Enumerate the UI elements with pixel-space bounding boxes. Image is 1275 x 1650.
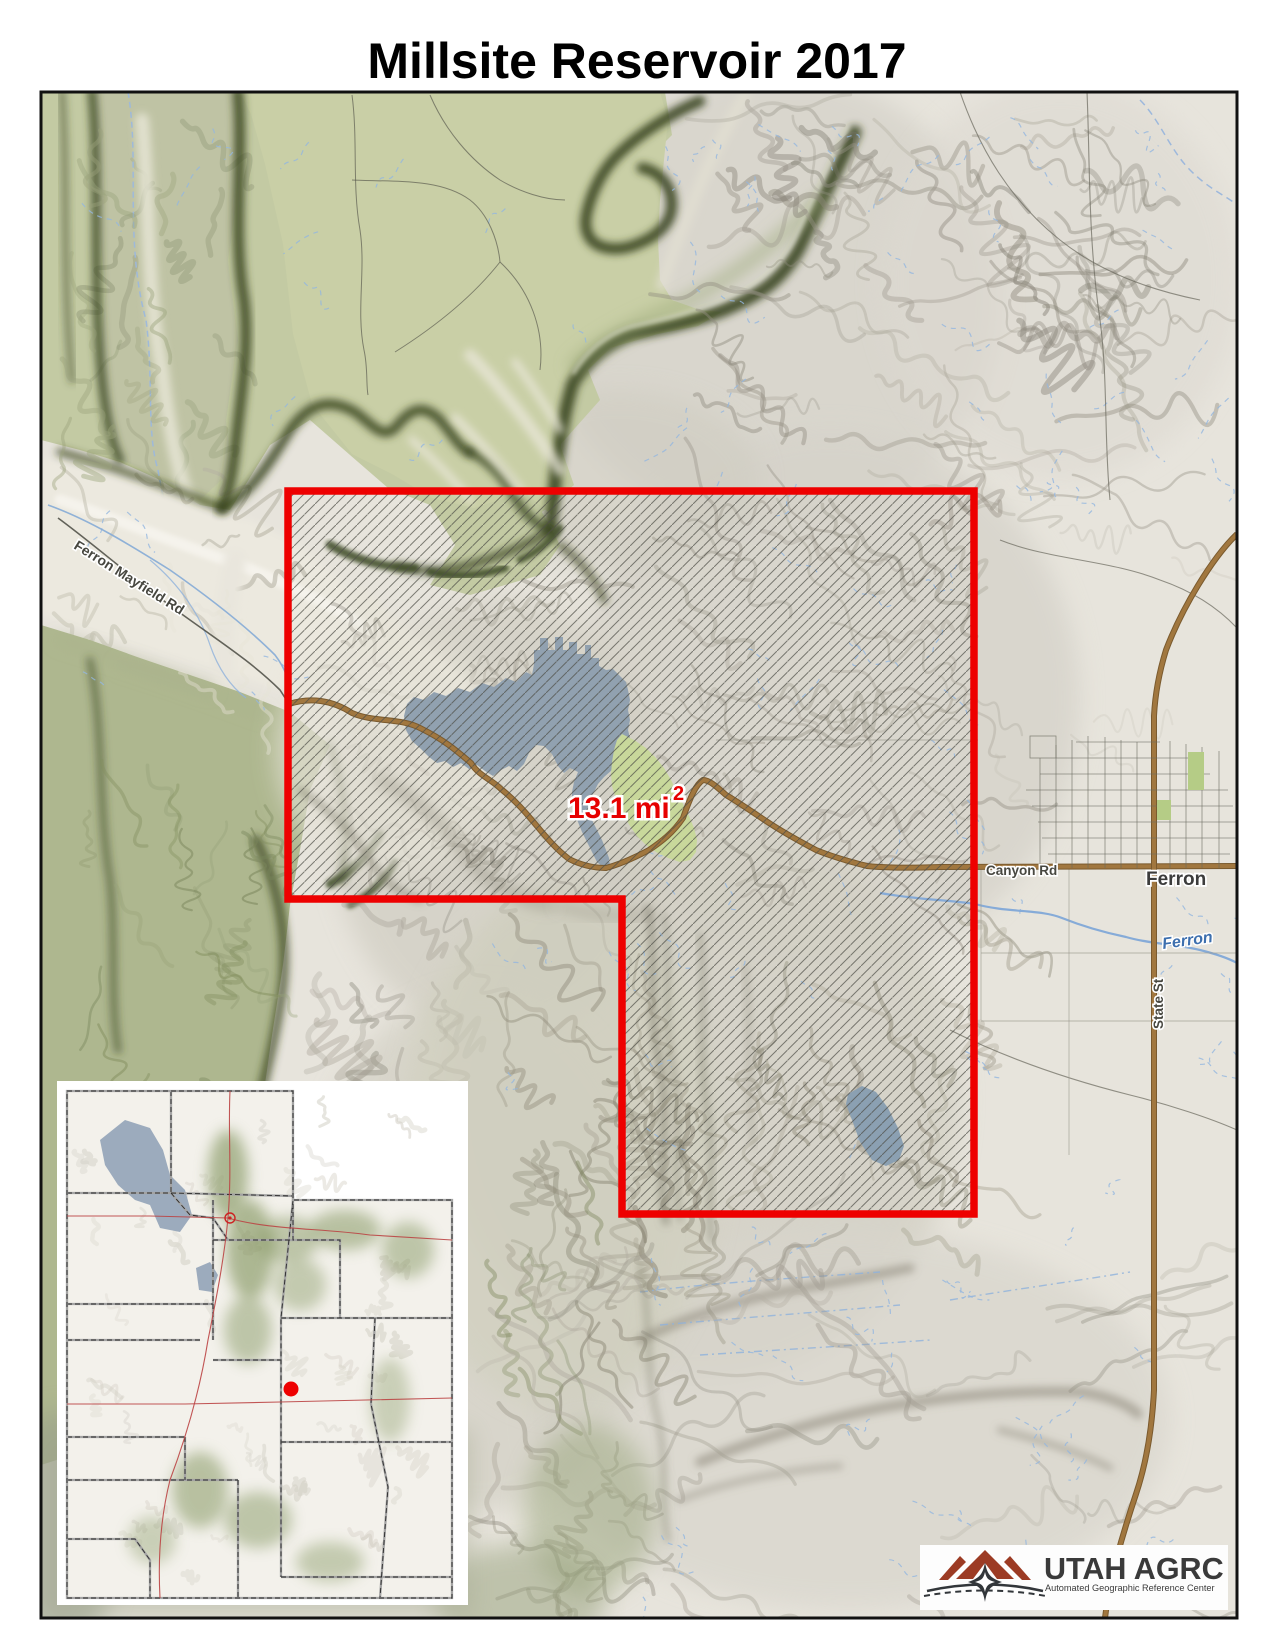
svg-text:Ferron: Ferron [1146,869,1206,890]
svg-text:Automated Geographic Reference: Automated Geographic Reference Center [1045,1583,1215,1593]
svg-text:Millsite Reservoir 2017: Millsite Reservoir 2017 [367,33,906,89]
svg-text:Canyon Rd: Canyon Rd [986,863,1057,878]
svg-text:UTAH AGRC: UTAH AGRC [1044,1552,1224,1586]
svg-text:2: 2 [673,783,684,805]
svg-text:13.1 mi: 13.1 mi [568,792,670,825]
svg-text:State St: State St [1151,978,1166,1029]
